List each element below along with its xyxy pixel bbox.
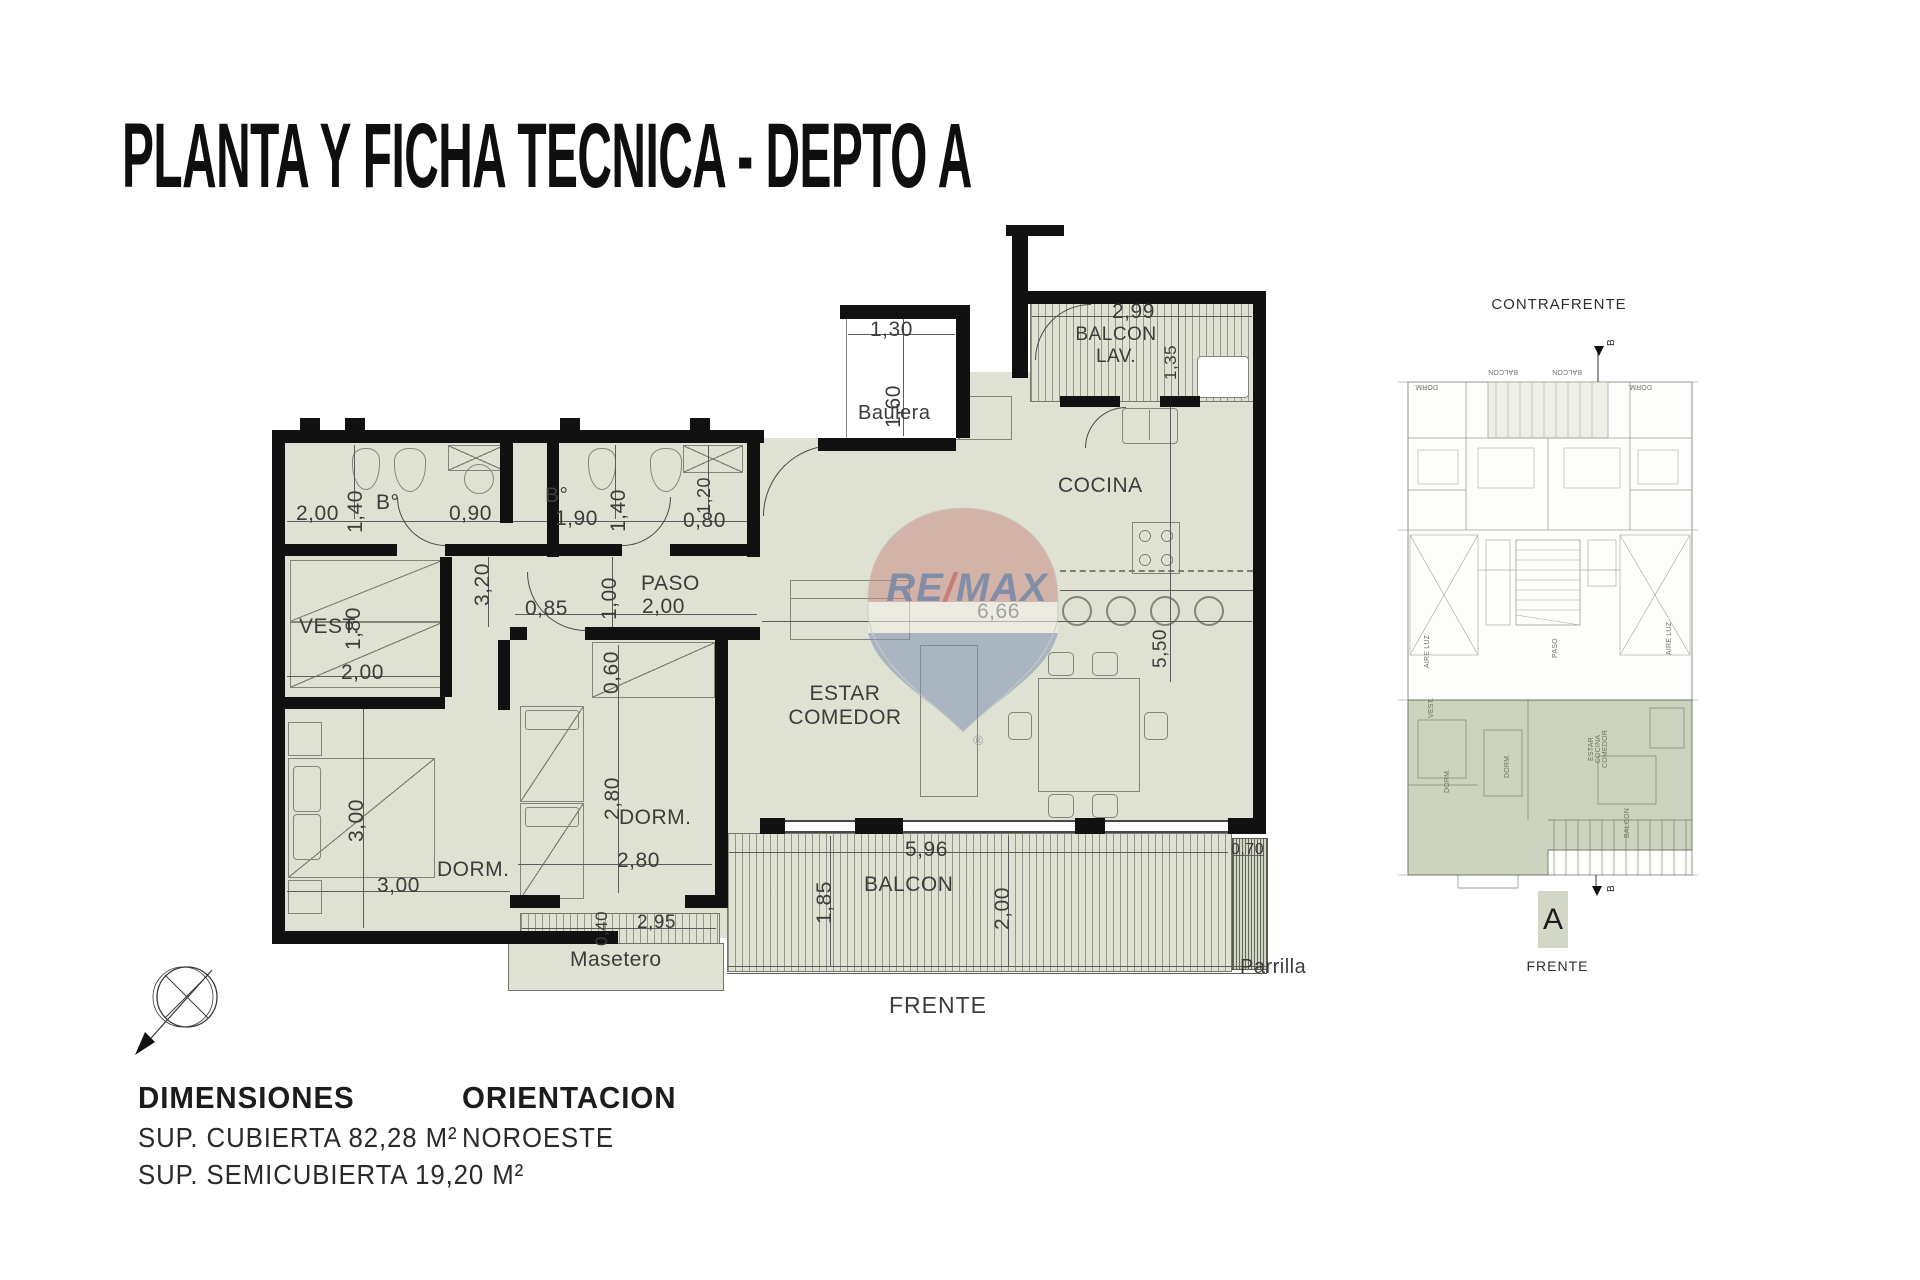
stove — [1132, 522, 1180, 574]
chair — [1144, 712, 1168, 740]
dim-label: 0,70 — [1231, 841, 1264, 859]
wall — [685, 895, 728, 908]
unit-a-letter: A — [1543, 903, 1563, 937]
wall — [272, 430, 285, 944]
wall — [1160, 396, 1200, 407]
unit-a-marker: A — [1538, 891, 1568, 948]
dimensions-heading: DIMENSIONES — [138, 1080, 355, 1116]
tiny-label: AIRE LUZ — [1424, 635, 1431, 668]
railing-line — [727, 966, 1266, 967]
counter-line — [1060, 590, 1253, 591]
window-band — [760, 820, 1253, 833]
wall — [715, 627, 728, 907]
wall-stub — [300, 418, 320, 432]
dim-label: 0,85 — [525, 597, 568, 621]
balcon-floor — [727, 833, 1232, 972]
wall — [445, 544, 622, 556]
dim-label: 1,20 — [694, 477, 715, 514]
frente-label: FRENTE — [889, 992, 987, 1019]
pillow — [293, 766, 321, 812]
frente-mini-label: FRENTE — [1510, 958, 1605, 974]
dim-label: 2,00 — [991, 887, 1015, 930]
sideboard — [920, 645, 978, 797]
room-label-bath1: B° — [376, 491, 399, 515]
wall — [1228, 818, 1266, 834]
wall-stub — [560, 418, 580, 432]
dim-line — [522, 928, 716, 929]
room-label-estar: ESTAR COMEDOR — [786, 682, 904, 730]
wall — [747, 430, 760, 557]
tiny-label: PASO — [1552, 638, 1559, 658]
tiny-label: BALCON — [1624, 808, 1631, 838]
wall — [285, 697, 445, 709]
pillow — [525, 807, 579, 827]
closet-box — [683, 445, 743, 473]
dim-label: 3,00 — [345, 799, 369, 842]
dim-line — [729, 852, 1228, 853]
dim-label: 1,60 — [882, 385, 906, 428]
nightstand — [288, 880, 322, 914]
dim-label: 0,60 — [600, 651, 624, 694]
dim-label: 2,80 — [617, 849, 660, 873]
dim-label: 2,99 — [1112, 300, 1155, 324]
wall — [818, 438, 956, 451]
dim-label: 1,80 — [342, 607, 366, 650]
wall — [1253, 291, 1266, 831]
dim-label: 1,90 — [555, 507, 598, 531]
nightstand — [288, 722, 322, 756]
dim-label: 1,40 — [344, 490, 368, 533]
tiny-label: VEST. — [1428, 698, 1435, 718]
registered-mark: ® — [973, 732, 983, 748]
pillow — [525, 710, 579, 730]
railing-line — [727, 973, 1266, 974]
wall — [272, 931, 618, 944]
wall — [840, 305, 970, 319]
dim-label: 2,95 — [637, 912, 676, 934]
dining-table — [1038, 678, 1140, 792]
wall — [440, 557, 452, 697]
main-floor-plan: B° B° VEST. PASO DORM. DORM. COCINA ESTA… — [0, 0, 1340, 1040]
dim-label: 3,20 — [471, 563, 495, 606]
shower-box — [448, 445, 504, 471]
tiny-label: BALCON — [1488, 368, 1518, 375]
section-marker-b-bottom: B — [1606, 885, 1617, 892]
dim-label: 1,00 — [598, 577, 622, 620]
wall-stub — [345, 418, 365, 432]
room-label-balcon-lav: BALCON LAV. — [1068, 324, 1164, 368]
sheet: PLANTA Y FICHA TECNICA - DEPTO A — [0, 0, 1920, 1280]
tiny-label: DORM. — [1414, 383, 1438, 390]
dim-label: 0,40 — [592, 911, 612, 946]
dim-label: 5,50 — [1150, 629, 1172, 668]
wall — [510, 627, 527, 640]
wall — [1060, 396, 1120, 407]
wall — [1075, 818, 1105, 834]
sink-divider — [1149, 410, 1150, 440]
dim-label: 3,00 — [377, 874, 420, 898]
room-label-parrilla: Parrilla — [1240, 956, 1306, 979]
vest-wardrobe — [290, 560, 442, 622]
room-label-dorm2: DORM. — [619, 806, 692, 830]
contrafrente-label: CONTRAFRENTE — [1469, 296, 1649, 313]
railing-line — [1266, 838, 1267, 974]
dim-label: 2,00 — [642, 595, 685, 619]
room-label-dorm1: DORM. — [437, 858, 510, 882]
dim-label: 0,90 — [449, 502, 492, 526]
orientation-value: NOROESTE — [462, 1122, 614, 1154]
chair — [1008, 712, 1032, 740]
tiny-label: DORM. — [1628, 383, 1652, 390]
wall — [760, 818, 785, 834]
dim-label: 1,30 — [870, 318, 913, 342]
wall — [510, 895, 560, 908]
sup-semicubierta-value: SUP. SEMICUBIERTA 19,20 M² — [138, 1159, 524, 1191]
tiny-label: BALCON — [1552, 368, 1582, 375]
room-label-balcon: BALCON — [864, 873, 953, 897]
orientation-heading: ORIENTACION — [462, 1080, 676, 1116]
chair — [1048, 794, 1074, 818]
dim-label: 1,40 — [607, 489, 631, 532]
sofa — [790, 580, 910, 640]
dim-label: 1,35 — [1161, 345, 1181, 380]
wall-stub — [690, 418, 710, 432]
wall — [585, 627, 760, 640]
tiny-label: ESTAR COCINA COMEDOR — [1588, 730, 1609, 768]
dim-line — [518, 864, 712, 865]
wall — [956, 305, 970, 438]
wall — [1012, 232, 1028, 378]
sofa-back-line — [790, 598, 908, 599]
dim-label: 1,85 — [813, 881, 837, 924]
key-plan-drawing — [1398, 330, 1698, 915]
chair — [1092, 652, 1118, 676]
tiny-label: AIRE LUZ — [1666, 622, 1673, 655]
dim-label: 5,96 — [905, 838, 948, 862]
washing-machine — [1197, 356, 1249, 398]
dim-label: 6,66 — [977, 600, 1020, 624]
wall — [855, 818, 903, 834]
section-marker-b-top: B — [1606, 339, 1617, 346]
north-compass-icon — [130, 960, 235, 1065]
dim-label: 2,00 — [341, 661, 384, 685]
tiny-label: DORM. — [1504, 754, 1511, 778]
chair — [1092, 794, 1118, 818]
chair — [1048, 652, 1074, 676]
room-label-bath2: B° — [545, 484, 568, 508]
wall — [500, 443, 513, 523]
wall — [1006, 225, 1064, 236]
room-label-masetero: Masetero — [570, 948, 662, 972]
wall — [498, 640, 510, 710]
room-label-cocina: COCINA — [1058, 474, 1143, 498]
tiny-label: DORM. — [1444, 769, 1451, 793]
dim-label: 2,00 — [296, 502, 339, 526]
dim-label: 2,80 — [601, 777, 625, 820]
pillow — [293, 814, 321, 860]
wall — [272, 544, 397, 556]
counter-dashed-line — [1060, 570, 1253, 572]
sup-cubierta-value: SUP. CUBIERTA 82,28 M² — [138, 1122, 457, 1154]
room-label-paso: PASO — [641, 572, 700, 596]
